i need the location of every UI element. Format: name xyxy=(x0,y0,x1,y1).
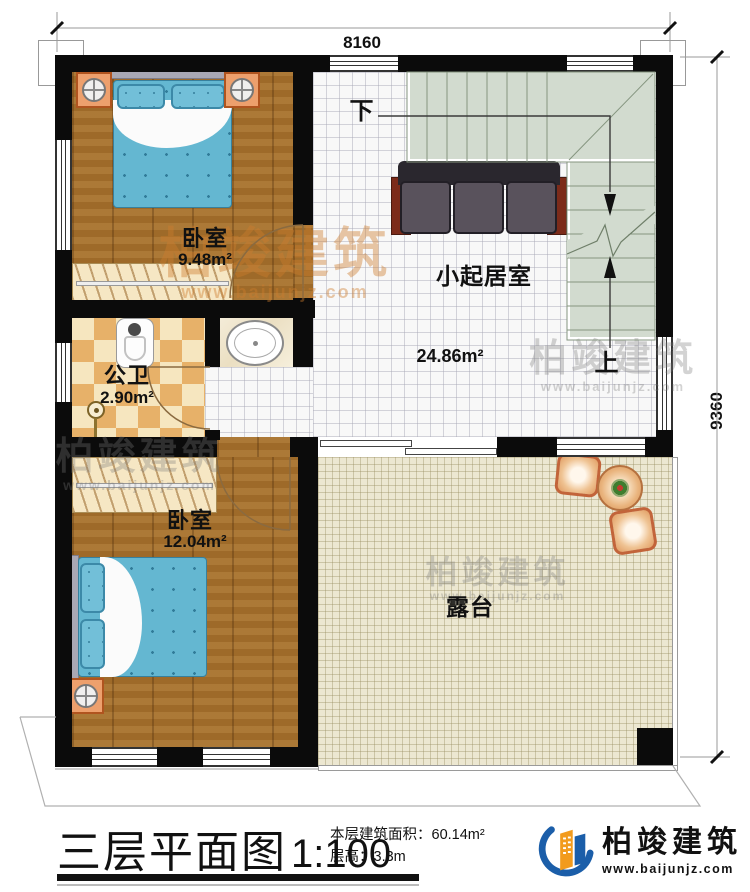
bed2-nightstand xyxy=(68,678,104,714)
window xyxy=(203,747,270,767)
hallway-floor xyxy=(205,367,313,437)
stair-upper-flight xyxy=(407,72,655,162)
bedroom1-label: 卧室 xyxy=(158,227,252,251)
toilet-basin xyxy=(124,336,146,361)
floor-info: 本层建筑面积：60.14m² 层高：3.3m xyxy=(330,824,535,869)
living-room-area: 24.86m² xyxy=(396,347,504,367)
wall xyxy=(290,437,318,457)
wardrobe-pole xyxy=(76,483,213,488)
lamp-icon xyxy=(82,78,106,102)
squat-toilet xyxy=(116,318,154,368)
wall xyxy=(270,747,318,767)
wall xyxy=(656,55,673,337)
bed2-pillow-top xyxy=(80,563,105,613)
wall xyxy=(157,747,203,767)
wall xyxy=(55,747,92,767)
brand-url: www.baijunjz.com xyxy=(602,862,742,876)
living-room-label: 小起居室 xyxy=(426,264,542,289)
window xyxy=(330,55,398,72)
toilet-drain-icon xyxy=(128,323,141,336)
floor-area-value: 60.14m² xyxy=(432,827,485,843)
wall xyxy=(497,437,557,457)
bed2-pillow-bottom xyxy=(80,619,105,669)
wall xyxy=(298,457,318,747)
drain-dot xyxy=(94,408,99,413)
terrace-chair-2 xyxy=(608,506,658,556)
floor-area-line: 本层建筑面积：60.14m² xyxy=(330,824,535,846)
sofa xyxy=(391,161,567,237)
wall xyxy=(205,318,220,367)
wall xyxy=(645,437,673,457)
brand-logo-icon xyxy=(536,822,594,882)
lamp-icon xyxy=(74,684,98,708)
bed1-pillow-right xyxy=(171,84,225,109)
terrace-parapet-right xyxy=(672,457,678,769)
sofa-cushion xyxy=(506,181,557,234)
bed1-pillow-left xyxy=(117,84,165,109)
dimension-top: 8160 xyxy=(330,33,394,53)
window xyxy=(55,140,72,250)
bathroom-label: 公卫 xyxy=(90,364,164,388)
wall xyxy=(398,55,567,72)
page-title: 三层平面图 xyxy=(57,816,287,880)
bedroom2-label: 卧室 xyxy=(143,509,237,533)
title-underline-thin xyxy=(57,884,419,886)
terrace-table xyxy=(597,465,643,511)
bedroom1-doorway-floor xyxy=(293,225,313,298)
window xyxy=(55,343,72,402)
stair-up-label: 上 xyxy=(593,351,621,377)
bedroom2-wardrobe xyxy=(72,457,217,513)
wall xyxy=(55,250,72,343)
floor-area-label: 本层建筑面积： xyxy=(330,827,432,843)
floor-height-line: 层高：3.3m xyxy=(330,846,535,868)
title-underline-thick xyxy=(57,874,419,881)
wall xyxy=(293,72,313,225)
sofa-cushion xyxy=(400,181,451,234)
bed1-nightstand-right xyxy=(224,72,260,108)
bedroom1-area: 9.48m² xyxy=(150,251,260,270)
bedroom2-area: 12.04m² xyxy=(138,533,252,552)
lamp-icon xyxy=(230,78,254,102)
floor-plan-canvas: 柏竣建筑 www.baijunjz.com 柏竣建筑 www.baijunjz.… xyxy=(0,0,750,892)
terrace-corner-pier xyxy=(637,728,673,765)
wall xyxy=(55,55,72,140)
brand-text-column: 柏竣建筑 www.baijunjz.com xyxy=(602,828,742,876)
brand-logo: 柏竣建筑 www.baijunjz.com xyxy=(536,822,750,882)
sliding-door-panel-1 xyxy=(320,440,412,447)
sink xyxy=(226,320,284,366)
terrace-parapet-bottom xyxy=(318,765,678,771)
wall xyxy=(55,437,217,457)
stair-down-label: 下 xyxy=(347,99,377,125)
wardrobe-pole xyxy=(76,281,229,286)
sliding-door-panel-2 xyxy=(405,448,497,455)
sofa-cushion xyxy=(453,181,504,234)
brand-name: 柏竣建筑 xyxy=(602,828,742,858)
dimension-right: 9360 xyxy=(707,381,727,441)
sink-drain-dot xyxy=(253,341,258,346)
bedroom2-doorway-floor xyxy=(217,437,290,457)
window xyxy=(656,337,673,430)
bathroom-area: 2.90m² xyxy=(80,389,174,408)
window xyxy=(557,437,645,457)
plant-icon xyxy=(611,479,629,497)
wall xyxy=(55,300,315,318)
window xyxy=(567,55,633,72)
floor-height-label: 层高： xyxy=(330,849,374,865)
floor-height-value: 3.3m xyxy=(374,849,406,865)
bed1-nightstand-left xyxy=(76,72,112,108)
window xyxy=(92,747,157,767)
wall xyxy=(55,55,330,72)
terrace-label: 露台 xyxy=(438,595,502,620)
terrace-chair-1 xyxy=(554,452,602,498)
stair-right-flight xyxy=(567,162,655,340)
